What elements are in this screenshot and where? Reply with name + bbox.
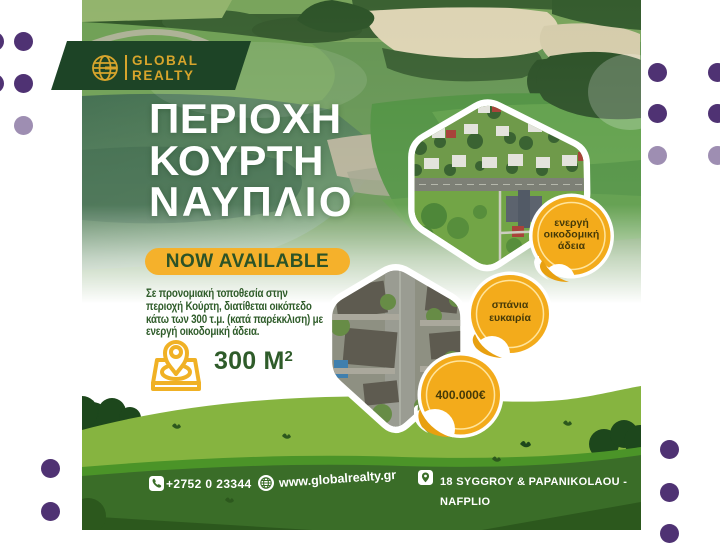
svg-text:άδεια: άδεια — [558, 240, 586, 252]
svg-text:οικοδομική: οικοδομική — [544, 229, 600, 241]
svg-text:400.000€: 400.000€ — [435, 388, 485, 402]
svg-text:ενεργή: ενεργή — [554, 217, 589, 229]
svg-text:ευκαιρία: ευκαιρία — [489, 312, 531, 324]
svg-text:σπάνια: σπάνια — [492, 299, 529, 311]
